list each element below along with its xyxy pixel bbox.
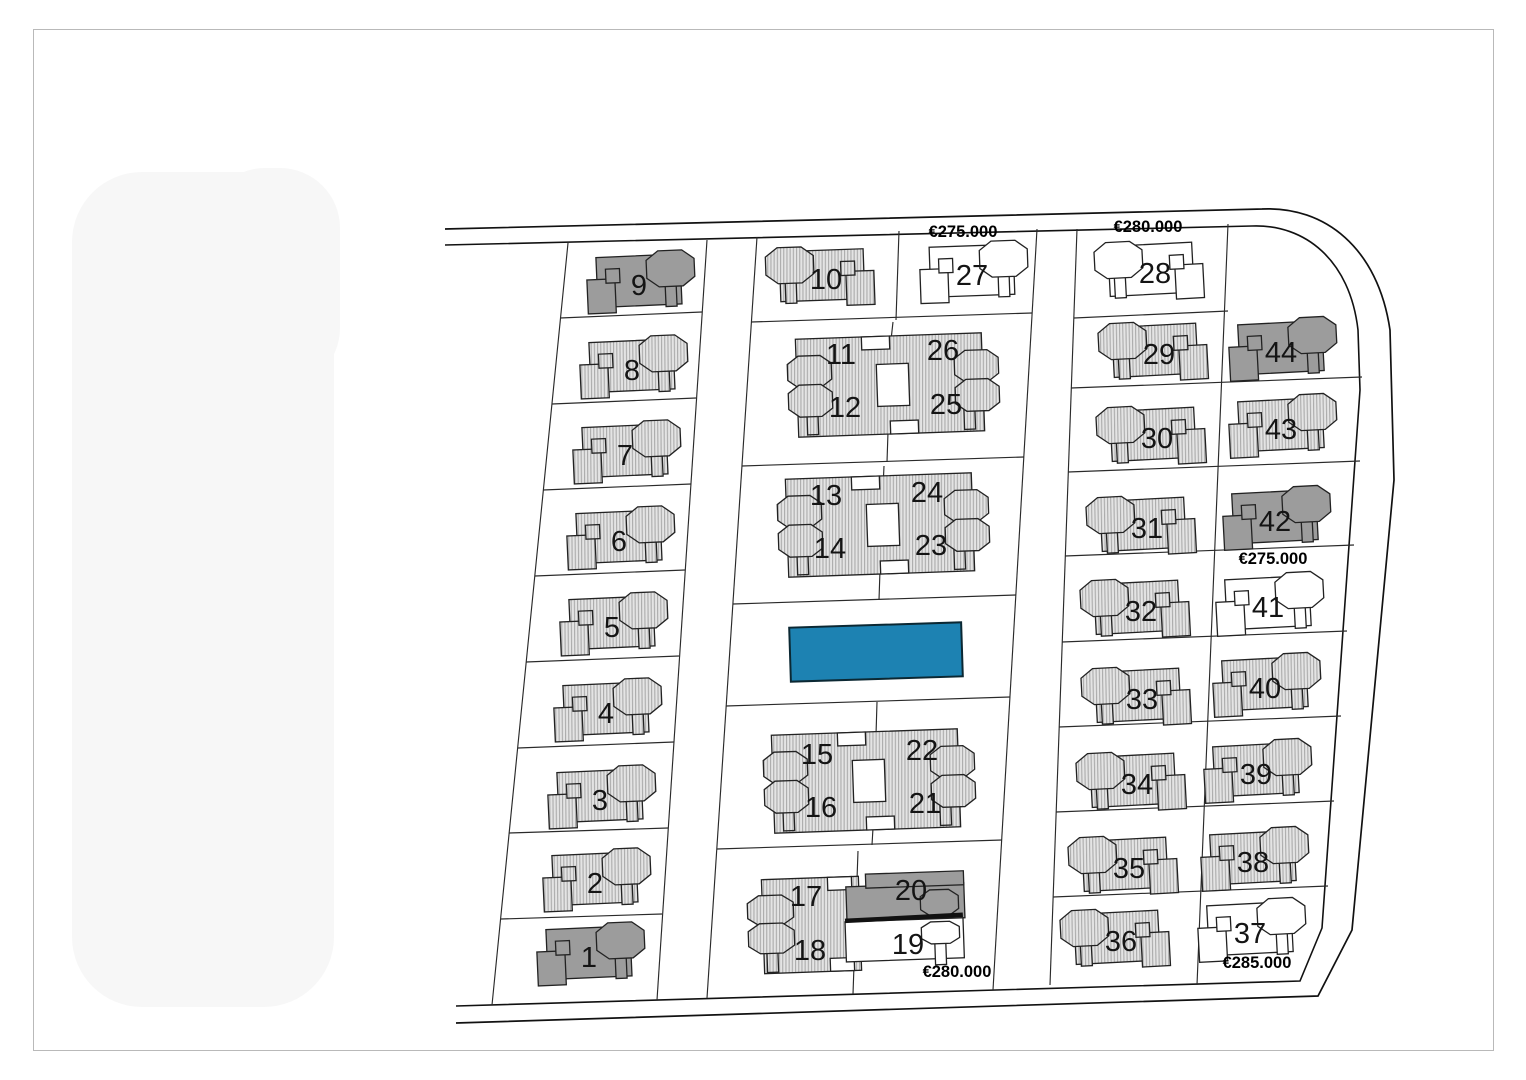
tree-icon xyxy=(747,895,794,927)
tree-icon xyxy=(1096,406,1146,444)
lot-9-label[interactable]: 9 xyxy=(631,270,647,302)
tree-icon xyxy=(944,489,989,523)
tree-icon xyxy=(602,847,652,885)
lot-12-label[interactable]: 12 xyxy=(829,392,861,424)
lot-17-label[interactable]: 17 xyxy=(790,881,822,913)
lot-23-label[interactable]: 23 xyxy=(915,530,947,562)
lot-28-price: €280.000 xyxy=(1114,218,1183,236)
lot-44-label[interactable]: 44 xyxy=(1265,337,1297,369)
lot-31-label[interactable]: 31 xyxy=(1131,513,1163,545)
tree-icon xyxy=(646,249,696,287)
tree-icon xyxy=(765,247,814,285)
swimming-pool xyxy=(789,622,963,681)
lot-40-label[interactable]: 40 xyxy=(1249,673,1281,705)
lot-41-price: €275.000 xyxy=(1239,550,1308,568)
lot-15-label[interactable]: 15 xyxy=(801,739,833,771)
tree-icon xyxy=(1098,322,1148,360)
lot-37-price: €285.000 xyxy=(1223,954,1292,972)
plot-line xyxy=(742,457,1024,466)
plot-line xyxy=(726,697,1010,706)
site-plan-svg: 1234567891027282930313233343536373839404… xyxy=(0,0,1526,1080)
plot-line xyxy=(872,828,873,845)
plot-line xyxy=(560,312,702,318)
lot-2-label[interactable]: 2 xyxy=(587,868,603,900)
lot-10-label[interactable]: 10 xyxy=(810,264,842,296)
lot-42-label[interactable]: 42 xyxy=(1259,506,1291,538)
lot-5-label[interactable]: 5 xyxy=(604,612,620,644)
plot-line xyxy=(707,237,757,998)
tree-icon xyxy=(607,764,657,802)
building-13-14-23-24[interactable] xyxy=(776,472,990,577)
lot-27-price: €275.000 xyxy=(929,223,998,241)
lot-21-label[interactable]: 21 xyxy=(909,788,941,820)
lot-22-label[interactable]: 22 xyxy=(906,735,938,767)
lot-6-label[interactable]: 6 xyxy=(611,526,627,558)
lot-20-label[interactable]: 20 xyxy=(895,875,927,907)
tree-icon xyxy=(613,677,663,715)
plot-line xyxy=(535,570,685,576)
plot-line xyxy=(509,828,668,833)
plot-line xyxy=(552,398,696,404)
plot-line xyxy=(733,595,1016,604)
lot-29-label[interactable]: 29 xyxy=(1143,339,1175,371)
building-11-12-25-26[interactable] xyxy=(786,332,1000,437)
tree-icon xyxy=(639,334,689,372)
lot-36-label[interactable]: 36 xyxy=(1105,926,1137,958)
lot-33-label[interactable]: 33 xyxy=(1126,684,1158,716)
tree-icon xyxy=(1081,667,1131,705)
tree-icon xyxy=(954,349,999,383)
lot-11-label[interactable]: 11 xyxy=(826,339,856,371)
tree-icon xyxy=(626,505,676,543)
lot-24-label[interactable]: 24 xyxy=(911,477,943,509)
lot-32-label[interactable]: 32 xyxy=(1125,596,1157,628)
lot-3-label[interactable]: 3 xyxy=(592,785,608,817)
tree-icon xyxy=(1086,496,1136,534)
lot-16-label[interactable]: 16 xyxy=(805,792,837,824)
plot-line xyxy=(526,656,679,662)
plot-line xyxy=(887,432,888,462)
lot-39-label[interactable]: 39 xyxy=(1240,759,1272,791)
lot-1-label[interactable]: 1 xyxy=(581,942,597,974)
lot-35-label[interactable]: 35 xyxy=(1113,853,1145,885)
plot-line xyxy=(751,313,1032,322)
lot-27-label[interactable]: 27 xyxy=(956,260,988,292)
lot-19-price: €280.000 xyxy=(923,963,992,981)
plot-line xyxy=(993,229,1037,990)
plot-line xyxy=(896,231,899,320)
lot-8-label[interactable]: 8 xyxy=(624,355,640,387)
plot-line xyxy=(518,742,674,748)
plot-line xyxy=(543,484,691,490)
lot-38-label[interactable]: 38 xyxy=(1237,847,1269,879)
site-plan-page: 1234567891027282930313233343536373839404… xyxy=(0,0,1526,1080)
lot-4-label[interactable]: 4 xyxy=(598,698,614,730)
tree-icon xyxy=(748,923,795,955)
lot-34-label[interactable]: 34 xyxy=(1121,769,1153,801)
plot-line xyxy=(1050,229,1077,985)
tree-icon xyxy=(1094,241,1144,279)
labels-layer: 1234567891027282930313233343536373839404… xyxy=(581,218,1307,981)
lot-30-label[interactable]: 30 xyxy=(1141,423,1173,455)
tree-icon xyxy=(945,518,990,552)
tree-icon xyxy=(921,921,960,944)
lot-26-label[interactable]: 26 xyxy=(927,335,959,367)
tree-icon xyxy=(619,591,669,629)
tree-icon xyxy=(596,921,646,959)
lot-13-label[interactable]: 13 xyxy=(810,480,842,512)
lot-28-label[interactable]: 28 xyxy=(1139,258,1171,290)
lot-25-label[interactable]: 25 xyxy=(930,389,962,421)
plot-line xyxy=(1071,377,1362,388)
plot-line xyxy=(1068,461,1360,472)
tree-icon xyxy=(1076,752,1126,790)
plot-line xyxy=(501,914,662,919)
lot-18-label[interactable]: 18 xyxy=(794,935,826,967)
plot-line xyxy=(1074,311,1228,318)
lot-41-label[interactable]: 41 xyxy=(1252,592,1284,624)
tree-icon xyxy=(764,780,809,814)
lot-37-label[interactable]: 37 xyxy=(1234,918,1266,950)
plot-line xyxy=(876,702,877,735)
tree-icon xyxy=(632,419,682,457)
lot-14-label[interactable]: 14 xyxy=(814,533,846,565)
tree-icon xyxy=(1068,836,1118,874)
lot-7-label[interactable]: 7 xyxy=(617,440,633,472)
tree-icon xyxy=(1060,909,1110,947)
lot-19-label[interactable]: 19 xyxy=(892,929,924,961)
plot-line xyxy=(717,840,1002,849)
tree-icon xyxy=(788,384,833,418)
building-15-16-21-22[interactable] xyxy=(762,728,976,833)
lot-43-label[interactable]: 43 xyxy=(1265,414,1297,446)
tree-icon xyxy=(1080,579,1130,617)
